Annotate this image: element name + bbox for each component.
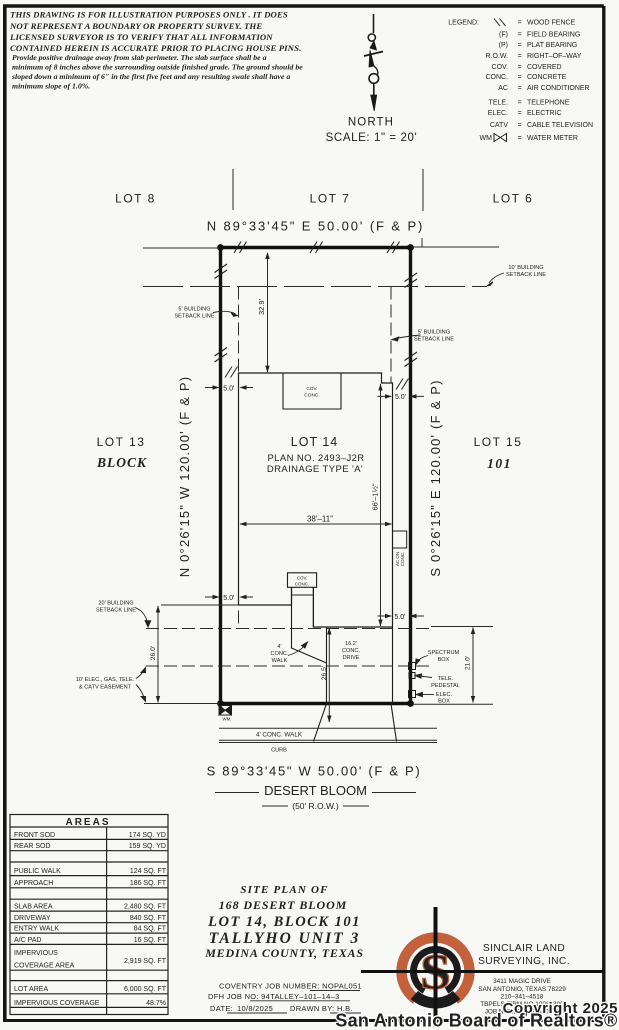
svg-text:(P): (P) bbox=[499, 42, 508, 49]
svg-text:TALLYHO UNIT 3: TALLYHO UNIT 3 bbox=[209, 930, 360, 947]
svg-text:Provide positive drainage away: Provide positive drainage away from slab… bbox=[12, 53, 267, 62]
svg-text:DRAWN BY:: DRAWN BY: bbox=[290, 1004, 335, 1013]
svg-text:SINCLAIR LAND: SINCLAIR LAND bbox=[483, 943, 565, 954]
svg-text:LOT 15: LOT 15 bbox=[474, 435, 523, 449]
svg-text:5.0': 5.0' bbox=[223, 595, 234, 602]
svg-text:4' CONC. WALK: 4' CONC. WALK bbox=[256, 732, 303, 739]
svg-text:26.0': 26.0' bbox=[150, 646, 157, 661]
svg-text:=: = bbox=[518, 32, 522, 39]
svg-text:SLAB AREA: SLAB AREA bbox=[14, 904, 53, 911]
svg-text:IMPERVIOUS: IMPERVIOUS bbox=[14, 950, 58, 957]
svg-text:CONC.: CONC. bbox=[342, 648, 360, 654]
svg-text:COVENTRY JOB NUMBER: NOPAL051: COVENTRY JOB NUMBER: NOPAL051 bbox=[219, 982, 362, 991]
svg-text:SPECTRUM: SPECTRUM bbox=[428, 650, 460, 656]
svg-text:SETBACK LINE: SETBACK LINE bbox=[174, 314, 214, 320]
svg-text:5' BUILDING: 5' BUILDING bbox=[418, 330, 450, 336]
svg-text:168 DESERT BLOOM: 168 DESERT BLOOM bbox=[219, 898, 347, 912]
svg-text:=: = bbox=[518, 20, 522, 27]
svg-text:PLAN NO. 2493–J2R: PLAN NO. 2493–J2R bbox=[267, 453, 364, 464]
svg-text:=: = bbox=[518, 42, 522, 49]
svg-text:SETBACK LINE: SETBACK LINE bbox=[414, 337, 454, 343]
svg-text:5.0': 5.0' bbox=[223, 385, 234, 392]
svg-text:TELEPHONE: TELEPHONE bbox=[527, 100, 570, 107]
svg-text:S 0°26'15" E 120.00' (F & P): S 0°26'15" E 120.00' (F & P) bbox=[428, 379, 443, 576]
svg-text:2,480 SQ. FT: 2,480 SQ. FT bbox=[124, 904, 167, 911]
svg-text:LEGEND:: LEGEND: bbox=[448, 20, 479, 27]
svg-text:CONC.: CONC. bbox=[295, 582, 310, 587]
svg-text:N 89°33'45" E 50.00' (F & P): N 89°33'45" E 50.00' (F & P) bbox=[207, 219, 425, 234]
svg-text:WATER METER: WATER METER bbox=[527, 135, 578, 142]
svg-text:NOT REPRESENT A BOUNDARY OR PR: NOT REPRESENT A BOUNDARY OR PROPERTY SUR… bbox=[9, 21, 262, 31]
svg-text:COV.: COV. bbox=[306, 386, 317, 392]
svg-text:=: = bbox=[518, 85, 522, 92]
svg-text:5.0': 5.0' bbox=[395, 394, 406, 401]
svg-text:PLAT BEARING: PLAT BEARING bbox=[527, 42, 577, 49]
svg-text:CONC.: CONC. bbox=[304, 393, 319, 399]
svg-text:32.9': 32.9' bbox=[257, 298, 266, 315]
svg-text:WM: WM bbox=[480, 135, 493, 142]
svg-text:SAN ANTONIO, TEXAS 78229: SAN ANTONIO, TEXAS 78229 bbox=[478, 986, 566, 993]
svg-text:TELE.: TELE. bbox=[438, 676, 454, 682]
svg-text:S 89°33'45" W 50.00' (F & P): S 89°33'45" W 50.00' (F & P) bbox=[207, 764, 422, 779]
svg-text:LOT AREA: LOT AREA bbox=[14, 986, 48, 993]
svg-text:CONTAINED HEREIN IS ACCURATE P: CONTAINED HEREIN IS ACCURATE PRIOR TO PL… bbox=[10, 43, 301, 53]
svg-text:38'–11": 38'–11" bbox=[307, 515, 333, 524]
svg-text:LOT 14: LOT 14 bbox=[291, 435, 338, 449]
svg-text:COV.: COV. bbox=[297, 576, 308, 581]
svg-text:WM.: WM. bbox=[222, 717, 231, 722]
svg-text:AREAS: AREAS bbox=[65, 817, 110, 828]
svg-text:LOT 14, BLOCK 101: LOT 14, BLOCK 101 bbox=[207, 914, 361, 930]
svg-text:16 SQ. FT: 16 SQ. FT bbox=[134, 937, 167, 944]
svg-text:ELEC.: ELEC. bbox=[436, 692, 453, 698]
svg-text:6,000 SQ. FT: 6,000 SQ. FT bbox=[124, 986, 167, 993]
svg-text:REAR SOD: REAR SOD bbox=[14, 843, 51, 850]
svg-text:AIR CONDITIONER: AIR CONDITIONER bbox=[527, 85, 590, 92]
svg-text:WALK: WALK bbox=[272, 658, 288, 664]
svg-text:AC: AC bbox=[498, 85, 508, 92]
svg-text:=: = bbox=[518, 100, 522, 107]
svg-text:84 SQ. FT: 84 SQ. FT bbox=[134, 926, 167, 933]
svg-text:CONC.: CONC. bbox=[485, 74, 508, 81]
svg-text:LOT 13: LOT 13 bbox=[97, 435, 146, 449]
svg-text:minimum slope of 1.0%.: minimum slope of 1.0%. bbox=[12, 81, 90, 90]
svg-text:DRAINAGE TYPE 'A': DRAINAGE TYPE 'A' bbox=[267, 464, 363, 475]
svg-text:2,919 SQ. FT: 2,919 SQ. FT bbox=[124, 958, 167, 965]
svg-text:SETBACK LINE: SETBACK LINE bbox=[96, 608, 136, 614]
svg-text:PUBLIC WALK: PUBLIC WALK bbox=[14, 868, 61, 875]
svg-text:NORTH: NORTH bbox=[348, 117, 394, 129]
svg-text:5.0': 5.0' bbox=[394, 614, 405, 621]
svg-text:AC ON: AC ON bbox=[395, 552, 400, 566]
svg-text:10' ELEC., GAS, TELE.: 10' ELEC., GAS, TELE. bbox=[76, 677, 135, 683]
svg-text:CONC.: CONC. bbox=[270, 651, 288, 657]
svg-text:CONCRETE: CONCRETE bbox=[527, 74, 567, 81]
svg-text:5' BUILDING: 5' BUILDING bbox=[178, 307, 210, 313]
svg-text:DRIVE: DRIVE bbox=[342, 655, 359, 661]
svg-text:20' BUILDING: 20' BUILDING bbox=[98, 601, 133, 607]
svg-text:174 SQ. YD: 174 SQ. YD bbox=[129, 832, 166, 839]
svg-text:3411 MAGIC DRIVE: 3411 MAGIC DRIVE bbox=[493, 978, 551, 985]
svg-text:124 SQ. FT: 124 SQ. FT bbox=[130, 868, 167, 875]
svg-text:San Antonio Board of Realtors®: San Antonio Board of Realtors® bbox=[335, 1011, 617, 1030]
svg-text:840 SQ. FT: 840 SQ. FT bbox=[130, 915, 167, 922]
svg-text:101: 101 bbox=[487, 456, 512, 471]
svg-text:A/C PAD: A/C PAD bbox=[14, 937, 42, 944]
svg-text:(50' R.O.W.): (50' R.O.W.) bbox=[292, 801, 339, 811]
svg-text:DATE:: DATE: bbox=[210, 1004, 233, 1013]
svg-text:N 0°26'15" W 120.00' (F & P): N 0°26'15" W 120.00' (F & P) bbox=[177, 376, 192, 578]
svg-text:CATV: CATV bbox=[490, 122, 508, 129]
svg-text:10' BUILDING: 10' BUILDING bbox=[508, 265, 543, 271]
svg-text:=: = bbox=[518, 135, 522, 142]
svg-text:CURB: CURB bbox=[271, 748, 287, 754]
svg-text:BLOCK: BLOCK bbox=[96, 455, 147, 470]
svg-text:=: = bbox=[518, 74, 522, 81]
svg-text:CABLE TELEVISION: CABLE TELEVISION bbox=[527, 122, 593, 129]
svg-text:(F): (F) bbox=[499, 32, 508, 39]
svg-text:ELECTRIC: ELECTRIC bbox=[527, 110, 562, 117]
svg-text:=: = bbox=[518, 110, 522, 117]
svg-text:R.O.W.: R.O.W. bbox=[485, 53, 508, 60]
svg-text:RIGHT–OF–WAY: RIGHT–OF–WAY bbox=[527, 53, 582, 60]
svg-text:SITE PLAN OF: SITE PLAN OF bbox=[240, 884, 328, 896]
svg-text:SCALE: 1" = 20': SCALE: 1" = 20' bbox=[326, 132, 418, 144]
svg-text:DRIVEWAY: DRIVEWAY bbox=[14, 915, 51, 922]
svg-text:FRONT SOD: FRONT SOD bbox=[14, 832, 55, 839]
svg-text:LICENSED SURVEYOR IS TO VERIFY: LICENSED SURVEYOR IS TO VERIFY THAT ALL … bbox=[9, 32, 273, 42]
svg-text:ENTRY WALK: ENTRY WALK bbox=[14, 926, 59, 933]
svg-text:THIS DRAWING IS FOR ILLUSTRATI: THIS DRAWING IS FOR ILLUSTRATION PURPOSE… bbox=[10, 10, 288, 20]
svg-text:APPROACH: APPROACH bbox=[14, 880, 53, 887]
svg-text:sloped down a minimum of 6" in: sloped down a minimum of 6" in the first… bbox=[11, 72, 290, 81]
svg-text:COV.: COV. bbox=[492, 64, 509, 71]
svg-text:IMPERVIOUS COVERAGE: IMPERVIOUS COVERAGE bbox=[14, 1000, 100, 1007]
svg-text:LOT 8: LOT 8 bbox=[115, 192, 156, 206]
svg-text:SETBACK LINE: SETBACK LINE bbox=[506, 272, 546, 278]
svg-text:MEDINA COUNTY, TEXAS: MEDINA COUNTY, TEXAS bbox=[204, 946, 364, 960]
svg-text:=: = bbox=[518, 53, 522, 60]
svg-text:LOT 6: LOT 6 bbox=[493, 192, 534, 206]
svg-text:WOOD FENCE: WOOD FENCE bbox=[527, 20, 576, 27]
svg-text:LOT 7: LOT 7 bbox=[310, 192, 351, 206]
svg-text:COVERAGE AREA: COVERAGE AREA bbox=[14, 962, 75, 969]
svg-text:DFH JOB NO: 94TALLEY–101–14–3: DFH JOB NO: 94TALLEY–101–14–3 bbox=[208, 992, 340, 1001]
svg-text:159 SQ. YD: 159 SQ. YD bbox=[129, 843, 166, 850]
svg-text:BOX: BOX bbox=[438, 699, 450, 705]
svg-text:=: = bbox=[518, 122, 522, 129]
svg-text:10/8/2025: 10/8/2025 bbox=[237, 1004, 273, 1013]
svg-text:& CATV EASEMENT: & CATV EASEMENT bbox=[79, 685, 132, 691]
svg-text:PEDESTAL: PEDESTAL bbox=[431, 683, 460, 689]
svg-text:CONC.: CONC. bbox=[400, 552, 405, 567]
svg-text:21.0': 21.0' bbox=[465, 656, 472, 670]
svg-text:minimum of 8 inches above the: minimum of 8 inches above the surroundin… bbox=[12, 62, 303, 71]
svg-text:16.2': 16.2' bbox=[345, 641, 357, 647]
svg-text:48.7%: 48.7% bbox=[146, 1000, 166, 1007]
svg-text:=: = bbox=[518, 64, 522, 71]
svg-text:COVERED: COVERED bbox=[527, 64, 562, 71]
svg-text:TELE.: TELE. bbox=[489, 100, 509, 107]
svg-text:ELEC.: ELEC. bbox=[488, 110, 508, 117]
svg-text:BOX: BOX bbox=[438, 657, 450, 663]
svg-text:186 SQ. FT: 186 SQ. FT bbox=[130, 880, 167, 887]
svg-text:66'–1½": 66'–1½" bbox=[371, 483, 380, 510]
svg-text:SURVEYING, INC.: SURVEYING, INC. bbox=[478, 956, 570, 967]
svg-text:DESERT BLOOM: DESERT BLOOM bbox=[264, 783, 367, 798]
svg-text:26.5': 26.5' bbox=[321, 666, 328, 681]
svg-text:4': 4' bbox=[277, 644, 281, 650]
svg-text:FIELD BEARING: FIELD BEARING bbox=[527, 32, 580, 39]
